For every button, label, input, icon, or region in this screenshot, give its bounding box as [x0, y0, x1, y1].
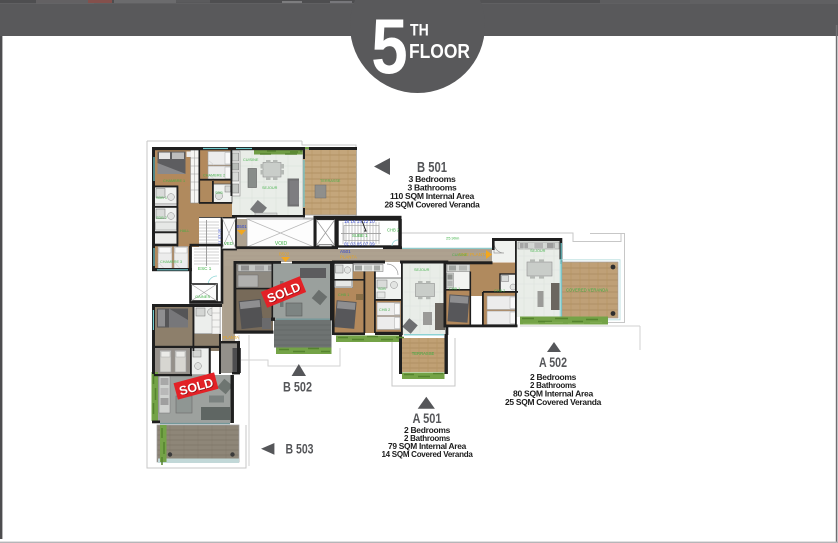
svg-text:SEJOUR: SEJOUR [530, 249, 546, 253]
svg-text:SEJOUR: SEJOUR [414, 268, 430, 272]
svg-text:A 501: A 501 [413, 410, 442, 426]
svg-text:CHB 2: CHB 2 [387, 228, 400, 233]
svg-text:B502: B502 [279, 252, 290, 257]
svg-text:B 503: B 503 [286, 441, 314, 457]
svg-text:VOID: VOID [275, 241, 288, 247]
svg-text:GAINES: GAINES [195, 294, 210, 299]
svg-text:VED: VED [224, 241, 233, 246]
svg-text:SEJOUR: SEJOUR [262, 186, 278, 190]
svg-text:25.90m: 25.90m [446, 236, 460, 241]
svg-text:SDB 1: SDB 1 [156, 196, 167, 200]
svg-text:FLOOR: FLOOR [409, 41, 470, 64]
svg-text:PLANTA: PLANTA [223, 335, 239, 340]
svg-text:HALL: HALL [180, 229, 190, 233]
svg-text:CHAMBRE 2: CHAMBRE 2 [203, 174, 225, 178]
svg-text:TH: TH [410, 21, 429, 39]
svg-text:B501: B501 [237, 224, 248, 229]
svg-text:ESC 1: ESC 1 [198, 266, 212, 271]
svg-text:B 502: B 502 [283, 379, 312, 395]
svg-text:CHAMBRE 3: CHAMBRE 3 [160, 260, 182, 264]
svg-text:SDB 2: SDB 2 [156, 216, 167, 220]
svg-text:CHB 2: CHB 2 [494, 289, 505, 293]
svg-text:TERRASSE: TERRASSE [412, 351, 435, 356]
svg-text:CHAMBRE 1: CHAMBRE 1 [163, 179, 185, 183]
svg-text:18 16 14 12 10: 18 16 14 12 10 [344, 219, 375, 224]
svg-text:TERRASSE: TERRASSE [320, 179, 341, 183]
svg-text:CUISINE: CUISINE [243, 158, 259, 162]
svg-text:SDB: SDB [378, 287, 386, 291]
svg-text:CHB 1: CHB 1 [338, 293, 349, 297]
svg-text:CHB 1: CHB 1 [449, 287, 460, 291]
svg-text:A501: A501 [340, 249, 351, 254]
svg-text:SUBE 1: SUBE 1 [352, 233, 368, 238]
svg-text:CUISINE: CUISINE [452, 253, 468, 257]
svg-text:A 502: A 502 [539, 354, 567, 370]
svg-text:25 SQM Covered Veranda: 25 SQM Covered Veranda [505, 397, 602, 407]
svg-text:SDB: SDB [215, 191, 223, 195]
svg-text:5: 5 [371, 4, 407, 91]
svg-text:CHB 2: CHB 2 [379, 308, 390, 312]
svg-text:14 SQM Covered Veranda: 14 SQM Covered Veranda [382, 449, 473, 459]
svg-text:COVERED VERANDA: COVERED VERANDA [566, 288, 608, 293]
svg-text:PLANTA: PLANTA [340, 255, 357, 260]
svg-text:28 SQM Covered Veranda: 28 SQM Covered Veranda [385, 200, 480, 210]
svg-text:01 03 05 07 09: 01 03 05 07 09 [344, 242, 375, 247]
